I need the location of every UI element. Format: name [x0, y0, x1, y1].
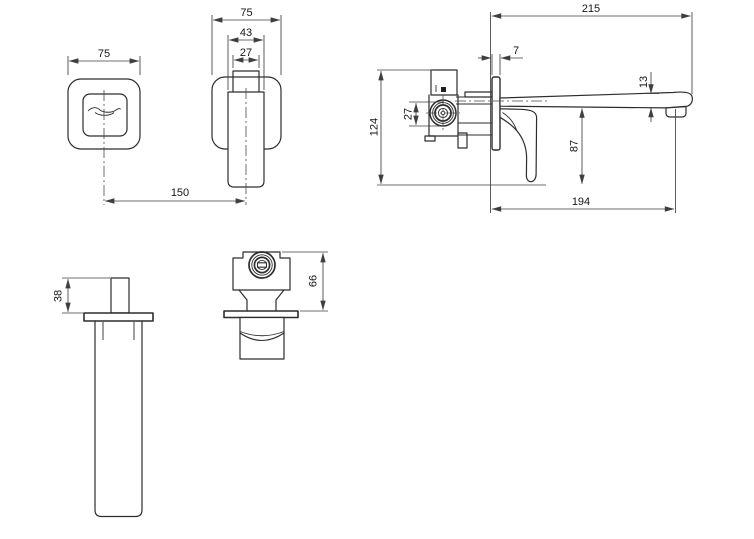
dim-lever-drop: 87 [569, 109, 583, 184]
technical-drawing: 75 150 75 43 27 215 7 1 [0, 0, 754, 539]
view-mixer-side [425, 70, 692, 182]
valve-neck-right [276, 290, 284, 311]
dim-label-valve-body-depth: 66 [308, 275, 320, 287]
dim-label-spout-tip-height: 13 [638, 76, 650, 88]
dim-handle-stem-width: 27 [233, 47, 259, 68]
view-valve-body [224, 252, 298, 359]
view-spout-front [84, 278, 153, 517]
wall-plate [492, 77, 500, 150]
view-handle-front [68, 79, 140, 205]
spout-flange [84, 313, 153, 321]
dim-handle-centres: 150 [105, 187, 245, 201]
spout [500, 92, 692, 108]
dim-faceplate-width: 75 [68, 48, 140, 75]
pipe-boss [465, 92, 492, 97]
dim-label-faceplate-width: 75 [98, 48, 110, 60]
connector-slot [258, 263, 267, 267]
valve-lower-block [240, 318, 284, 360]
dim-handle-plate-width: 75 [212, 7, 281, 75]
dim-wall-plate-thickness: 7 [478, 45, 523, 75]
view-handle-side [212, 71, 281, 205]
bracket-left-foot [425, 136, 435, 141]
spout-tube [95, 321, 142, 517]
drawing-page: 75 150 75 43 27 215 7 1 [0, 0, 754, 539]
dim-label-handle-stem-width: 27 [240, 47, 252, 59]
dim-label-spout-projection: 194 [572, 196, 590, 208]
dim-label-concealed-body-height: 124 [369, 118, 381, 136]
dim-label-handle-lever-width: 43 [240, 27, 252, 39]
spout-outlet [666, 107, 686, 117]
dim-spout-stub-height: 38 [53, 278, 111, 313]
valve-neck-left [239, 290, 247, 311]
valve-flange [224, 311, 298, 318]
dim-label-lever-drop: 87 [569, 140, 581, 152]
dim-label-spout-stub-height: 38 [53, 290, 65, 302]
dim-label-handle-plate-width: 75 [240, 7, 252, 19]
dim-label-spout-total-projection: 215 [582, 3, 600, 15]
lever-handle [500, 109, 537, 182]
dim-label-wall-plate-thickness: 7 [513, 45, 519, 57]
fixing-block [441, 87, 446, 92]
dim-label-handle-centres: 150 [171, 187, 189, 199]
spout-stub [111, 278, 129, 313]
dim-label-inlet-connection: 27 [403, 108, 415, 120]
